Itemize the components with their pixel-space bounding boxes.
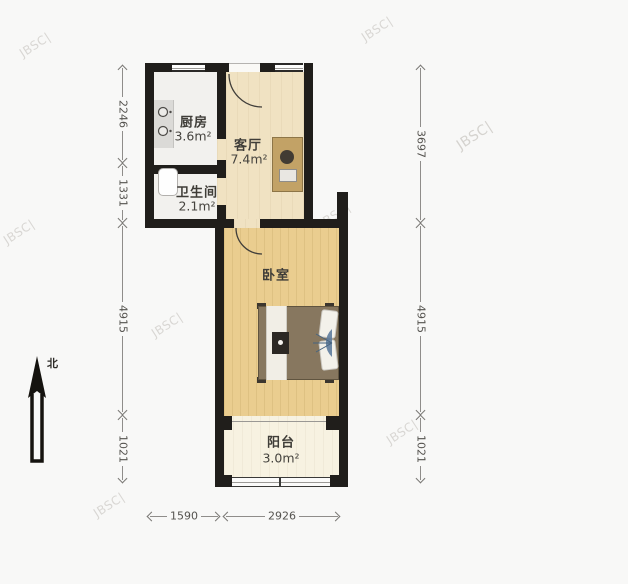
wall-bottom-band (260, 219, 348, 228)
window-mullion (232, 482, 330, 483)
dim-arrow (118, 223, 128, 233)
dim-arrow (118, 415, 128, 425)
balcony-threshold-line (232, 421, 326, 422)
watermark: JBSC| (17, 30, 53, 60)
north-arrow-shaft (32, 394, 42, 461)
dim-right-3: 1021 (414, 432, 429, 466)
north-arrow-head (28, 356, 46, 398)
dim-arrow (118, 474, 128, 484)
north-label: 北 (47, 355, 58, 371)
kitchen-area: 3.6m² (174, 129, 211, 144)
wall-left-lower (215, 219, 224, 487)
cabinet-panel (279, 169, 297, 182)
wall-balcony-corner (215, 475, 232, 487)
balcony-area: 3.0m² (262, 451, 299, 466)
living-window (275, 63, 303, 72)
dim-arrow (211, 512, 221, 522)
watermark: JBSC| (1, 217, 37, 247)
wall-divider (217, 160, 226, 178)
dim-arrow (118, 65, 128, 75)
dim-left-1: 2246 (116, 97, 131, 131)
dim-arrow (331, 512, 341, 522)
dim-right-2: 4915 (414, 302, 429, 336)
living-cabinet (272, 137, 303, 192)
floor-plan: JBSC| JBSC| JBSC| JBSC| JBSC| JBSC| JBSC… (0, 0, 628, 584)
bedroom-doorway (234, 219, 260, 228)
entry-door-opening (229, 63, 260, 72)
wall-left-upper (145, 63, 154, 228)
dim-left-2: 1331 (116, 176, 131, 210)
bed-tray-dot (278, 340, 283, 345)
dim-arrow (416, 474, 426, 484)
wall-divider (217, 72, 226, 139)
balcony-sill-left (218, 416, 232, 430)
wall-top-segment (205, 63, 229, 72)
dim-left-3: 4915 (116, 302, 131, 336)
living-area: 7.4m² (230, 152, 267, 167)
balcony-window (232, 477, 330, 487)
bed-pillow (318, 309, 338, 339)
balcony-sill-right (326, 416, 339, 430)
dim-bottom-1: 1590 (167, 509, 201, 524)
wall-balcony-corner (330, 475, 348, 487)
watermark: JBSC| (454, 119, 496, 154)
dim-left-4: 1021 (116, 432, 131, 466)
dim-bottom-2: 2926 (265, 509, 299, 524)
bathroom-doorway (217, 178, 226, 205)
watermark: JBSC| (91, 490, 127, 520)
kitchen-window (172, 63, 205, 72)
balcony-label: 阳台 (267, 432, 295, 451)
kitchen-doorway (217, 139, 226, 160)
wall-top-segment (260, 63, 275, 72)
window-center-tick (279, 478, 281, 486)
bed-tray (272, 332, 289, 354)
dim-arrow (118, 163, 128, 173)
watermark: JBSC| (359, 14, 395, 44)
wall-right-lower (339, 219, 348, 487)
window-mullion (275, 68, 303, 69)
dim-arrow (223, 512, 233, 522)
wall-top-segment (145, 63, 172, 72)
kitchen-counter (154, 100, 174, 148)
dim-arrow (147, 512, 157, 522)
wall-pillar (337, 192, 348, 219)
bedroom-label: 卧室 (262, 265, 290, 284)
dim-arrow (416, 223, 426, 233)
wall-right-upper (304, 63, 313, 228)
bathroom-area: 2.1m² (178, 199, 215, 214)
window-mullion (172, 68, 205, 69)
bed-pillow (318, 339, 339, 371)
dim-arrow (416, 65, 426, 75)
dim-right-1: 3697 (414, 127, 429, 161)
watermark: JBSC| (149, 310, 185, 340)
